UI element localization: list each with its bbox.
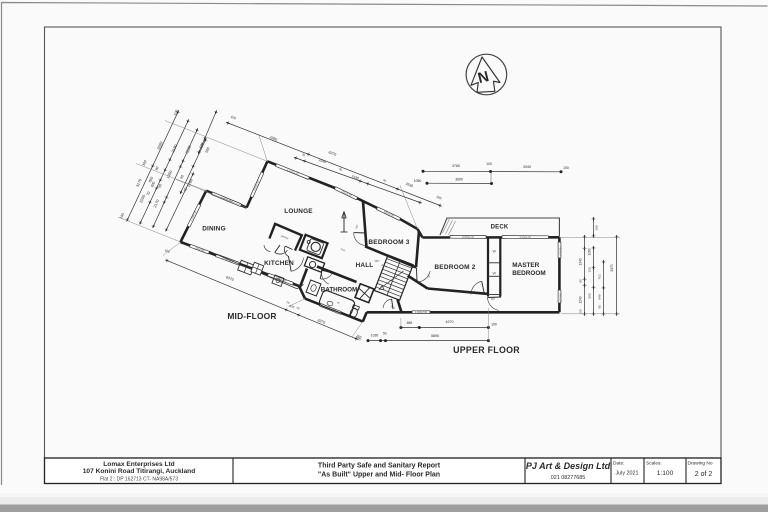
svg-text:BATHROOM: BATHROOM (321, 287, 358, 294)
svg-text:4270: 4270 (446, 320, 454, 324)
svg-text:Flat 2 : DP 162713 CT- NA9: Flat 2 : DP 162713 CT- NA98A/573 (100, 476, 178, 482)
svg-text:1260: 1260 (588, 248, 592, 255)
svg-text:PJ Art & Design Ltd: PJ Art & Design Ltd (526, 461, 611, 471)
svg-text:100: 100 (491, 323, 497, 327)
svg-text:HALL: HALL (356, 262, 374, 269)
svg-text:90: 90 (598, 305, 602, 309)
svg-text:760x1.9: 760x1.9 (559, 293, 563, 303)
svg-text:500: 500 (588, 293, 592, 298)
svg-text:July 2021: July 2021 (615, 471, 638, 477)
svg-text:Third Party Safe and Sanitary: Third Party Safe and Sanitary Report (318, 463, 441, 470)
svg-text:Scales:: Scales: (646, 461, 662, 467)
svg-text:KITCHEN: KITCHEN (264, 260, 294, 267)
svg-text:1050: 1050 (414, 179, 422, 183)
svg-text:DINING: DINING (202, 226, 226, 233)
svg-text:2.00x2.00: 2.00x2.00 (519, 235, 531, 239)
svg-text:3760: 3760 (452, 164, 460, 168)
svg-text:90: 90 (579, 279, 583, 283)
svg-text:900*: 900* (375, 260, 380, 263)
svg-text:763: 763 (598, 274, 602, 279)
svg-text:689: 689 (407, 321, 413, 325)
svg-text:1.600x700: 1.600x700 (415, 310, 428, 314)
svg-text:1240: 1240 (579, 296, 583, 303)
svg-text:BEDROOM 3: BEDROOM 3 (368, 239, 409, 246)
svg-text:021 08277685: 021 08277685 (551, 475, 585, 481)
svg-text:1600x2.00: 1600x2.00 (462, 235, 475, 239)
svg-text:107 Konini Road Titirangi, Au: 107 Konini Road Titirangi, Auckland (83, 468, 195, 475)
svg-text:BEDROOM 2: BEDROOM 2 (434, 264, 475, 271)
svg-text:907: 907 (491, 298, 496, 301)
svg-text:"As Built" Upper and Mid- Floo: "As Built" Upper and Mid- Floor Plan (318, 472, 440, 479)
svg-text:50: 50 (383, 332, 387, 336)
svg-text:100: 100 (486, 162, 492, 166)
svg-text:3940: 3940 (523, 165, 531, 169)
svg-text:100: 100 (595, 225, 599, 230)
svg-text:3690: 3690 (455, 178, 463, 182)
svg-text:BEDROOM: BEDROOM (512, 270, 545, 277)
svg-text:1340: 1340 (579, 258, 583, 265)
svg-text:Drawing No: Drawing No (688, 461, 713, 467)
svg-text:Lomax Enterprises Ltd: Lomax Enterprises Ltd (103, 461, 174, 468)
svg-text:5890: 5890 (431, 334, 439, 338)
svg-text:DECK: DECK (491, 224, 509, 230)
svg-text:UPPER FLOOR: UPPER FLOOR (453, 345, 520, 355)
svg-text:MASTER: MASTER (512, 262, 539, 269)
svg-text:3370: 3370 (610, 264, 614, 272)
svg-text:1:100: 1:100 (657, 470, 674, 477)
svg-text:LOUNGE: LOUNGE (284, 208, 313, 215)
svg-text:100: 100 (563, 166, 569, 170)
svg-text:2 of 2: 2 of 2 (695, 471, 713, 478)
svg-text:849: 849 (598, 294, 602, 299)
svg-text:MID-FLOOR: MID-FLOOR (227, 311, 276, 321)
svg-text:760x1.9: 760x1.9 (559, 246, 563, 256)
svg-text:Date:: Date: (613, 461, 624, 467)
svg-text:120: 120 (588, 267, 592, 272)
svg-text:1030: 1030 (371, 334, 379, 338)
